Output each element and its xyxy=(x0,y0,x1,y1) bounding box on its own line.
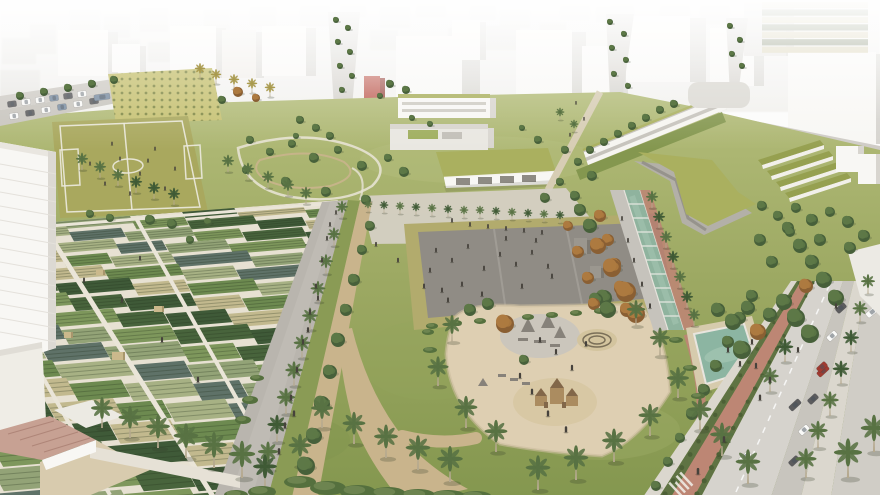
masterplan-aerial-rendering: Aerial architectural rendering of an urb… xyxy=(0,0,880,495)
masterplan-scene xyxy=(0,0,880,495)
haze-soft xyxy=(0,0,880,150)
green-roof-pavilion xyxy=(436,148,556,192)
